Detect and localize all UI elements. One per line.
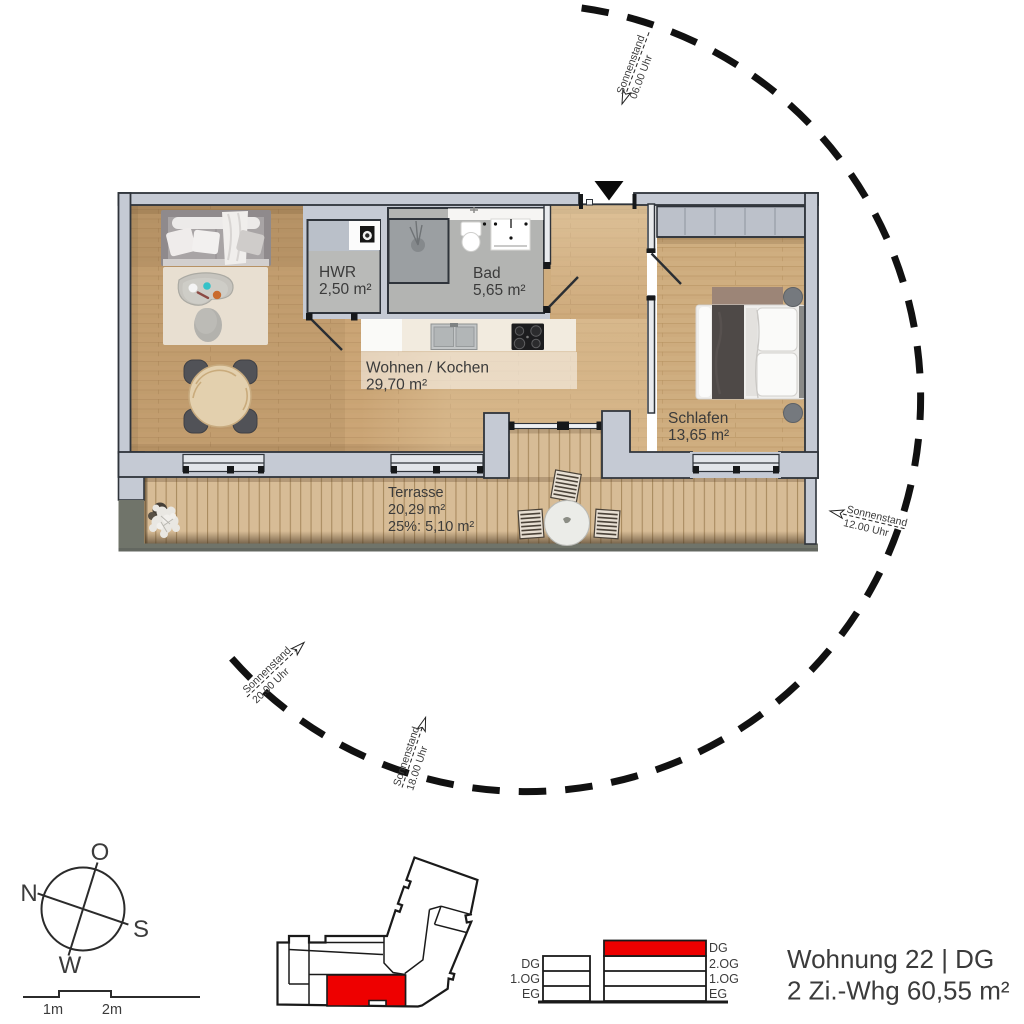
svg-text:EG: EG	[709, 987, 727, 1001]
svg-text:Wohnung 22 | DG: Wohnung 22 | DG	[787, 944, 994, 974]
svg-text:2 Zi.-Whg 60,55 m²: 2 Zi.-Whg 60,55 m²	[787, 976, 1010, 1006]
svg-text:Terrasse: Terrasse	[388, 485, 444, 501]
svg-text:2m: 2m	[102, 1002, 122, 1018]
svg-text:Schlafen: Schlafen	[668, 410, 728, 427]
svg-text:O: O	[91, 839, 110, 866]
svg-text:2,50 m²: 2,50 m²	[319, 281, 372, 298]
svg-text:S: S	[133, 916, 149, 943]
svg-text:5,65 m²: 5,65 m²	[473, 282, 526, 299]
svg-text:Wohnen / Kochen: Wohnen / Kochen	[366, 360, 489, 377]
svg-text:W: W	[59, 952, 82, 979]
svg-text:1m: 1m	[43, 1002, 63, 1018]
svg-text:Bad: Bad	[473, 265, 501, 282]
svg-text:HWR: HWR	[319, 264, 356, 281]
svg-text:13,65 m²: 13,65 m²	[668, 427, 729, 444]
svg-text:1.OG: 1.OG	[510, 972, 540, 986]
svg-text:25%: 5,10 m²: 25%: 5,10 m²	[388, 519, 474, 535]
svg-text:1.OG: 1.OG	[709, 972, 739, 986]
svg-text:20,29 m²: 20,29 m²	[388, 502, 445, 518]
svg-text:N: N	[20, 880, 37, 907]
svg-text:2.OG: 2.OG	[709, 957, 739, 971]
svg-text:DG: DG	[709, 941, 728, 955]
svg-text:29,70 m²: 29,70 m²	[366, 377, 427, 394]
svg-text:DG: DG	[521, 957, 540, 971]
svg-text:EG: EG	[522, 987, 540, 1001]
